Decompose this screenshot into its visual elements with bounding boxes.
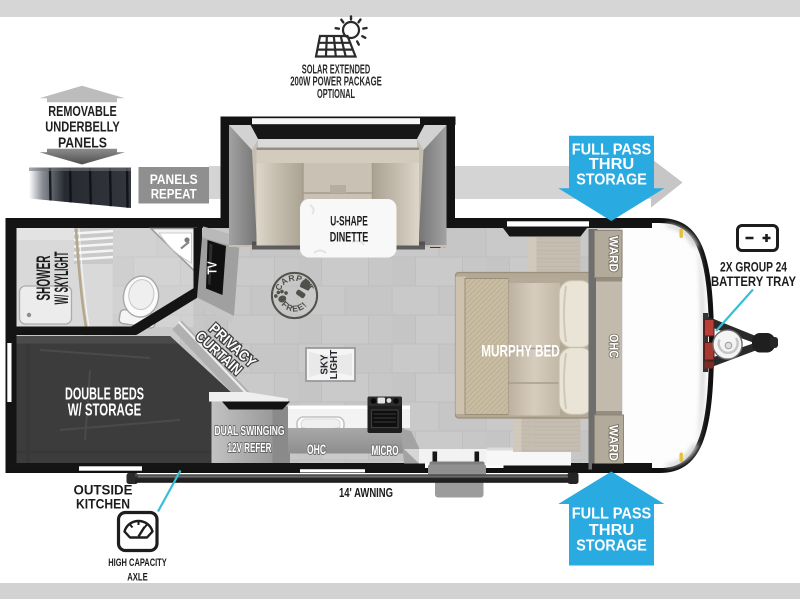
svg-text:DINETTE: DINETTE xyxy=(330,230,369,245)
svg-text:U-SHAPE: U-SHAPE xyxy=(330,214,368,229)
svg-text:PANELS: PANELS xyxy=(150,172,198,187)
svg-text:BATTERY TRAY: BATTERY TRAY xyxy=(711,273,797,289)
svg-text:OPTIONAL: OPTIONAL xyxy=(317,86,355,101)
svg-text:DUAL SWINGING: DUAL SWINGING xyxy=(215,423,285,438)
svg-text:12V REFER: 12V REFER xyxy=(228,440,272,455)
svg-text:REPEAT: REPEAT xyxy=(151,187,198,202)
svg-text:KITCHEN: KITCHEN xyxy=(76,495,130,511)
svg-text:MURPHY BED: MURPHY BED xyxy=(481,341,560,360)
svg-text:UNDERBELLY: UNDERBELLY xyxy=(45,119,120,136)
svg-text:WARD: WARD xyxy=(607,236,621,272)
svg-text:OHC: OHC xyxy=(607,334,621,358)
svg-text:FULL PASS: FULL PASS xyxy=(572,506,652,523)
svg-text:HIGH CAPACITY: HIGH CAPACITY xyxy=(108,557,167,569)
svg-text:STORAGE: STORAGE xyxy=(576,171,647,188)
svg-text:LIGHT: LIGHT xyxy=(329,350,340,379)
svg-text:OHC: OHC xyxy=(307,442,326,457)
svg-text:AXLE: AXLE xyxy=(127,572,148,584)
svg-text:STORAGE: STORAGE xyxy=(576,538,647,555)
svg-text:REMOVABLE: REMOVABLE xyxy=(48,103,117,120)
svg-text:WARD: WARD xyxy=(607,425,621,461)
svg-text:PANELS: PANELS xyxy=(58,134,107,151)
svg-text:W/ STORAGE: W/ STORAGE xyxy=(68,400,142,420)
svg-text:W/ SKYLIGHT: W/ SKYLIGHT xyxy=(51,251,73,304)
svg-text:14' AWNING: 14' AWNING xyxy=(339,485,393,500)
svg-text:TV: TV xyxy=(205,261,220,274)
svg-text:MICRO: MICRO xyxy=(372,443,399,458)
svg-text:THRU: THRU xyxy=(589,522,635,539)
